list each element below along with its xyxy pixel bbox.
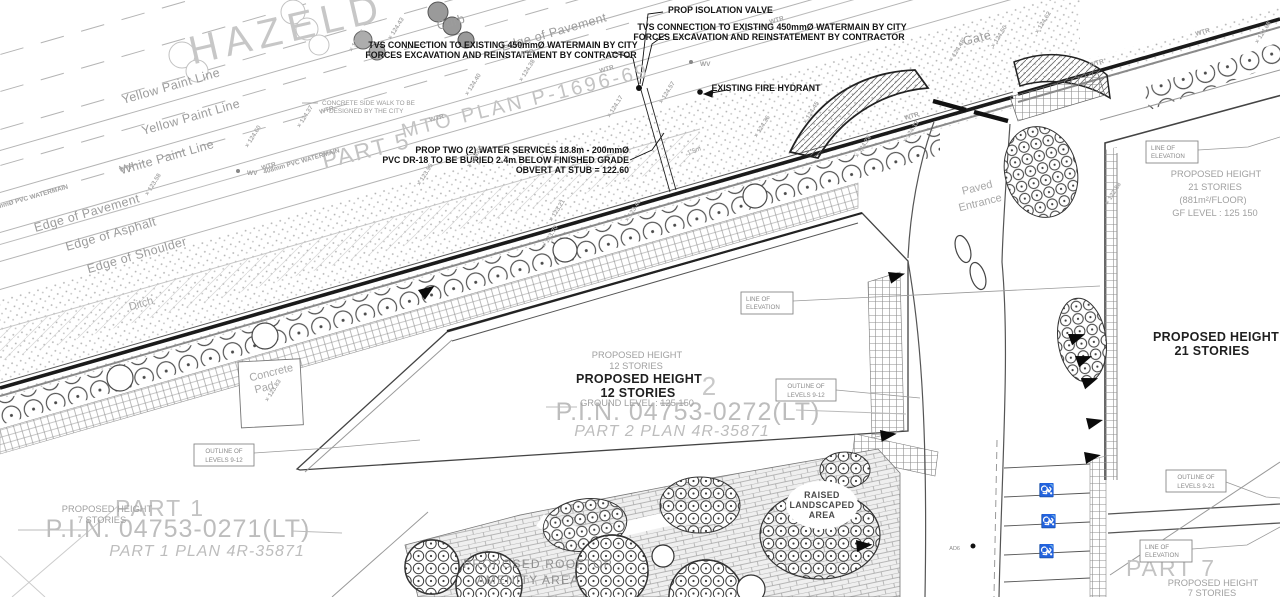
site-plan-drawing: ♿ ♿ ♿ AD6 [0,0,1280,597]
accessible-parking-icon: ♿ [1039,482,1054,498]
yellow-paint-line-label: Yellow Paint Line [140,96,241,137]
fire-hydrant-icon [697,89,703,95]
oval-planter [967,261,989,292]
oval-planter [952,234,974,265]
b12-grey-stories: 12 STORIES [609,361,663,371]
elevation-line [1108,523,1280,533]
planters [952,118,1112,385]
b21-grey-stories: 21 STORIES [1188,182,1242,192]
b21-gf-level: GF LEVEL : 125 150 [1172,208,1257,218]
sidewalk-note-line2: DESIGNED BY THE CITY [329,108,404,115]
b12-grey-height: PROPOSED HEIGHT [592,350,683,360]
b12-bold-height: PROPOSED HEIGHT [576,372,702,386]
rooftop-amenity [332,449,900,597]
accessible-parking-icon: ♿ [1041,513,1056,529]
b7-left-height: PROPOSED HEIGHT [62,504,153,514]
outline-levels-912-box-center: OUTLINE OF LEVELS 9-12 [776,379,836,401]
b21-grey-height: PROPOSED HEIGHT [1171,169,1262,179]
tree-icon [553,238,577,262]
shrub-mass [1052,295,1111,385]
yellow-paint-line-label: Yellow Paint Line [120,65,221,106]
drive-centerline-dashed [994,440,997,597]
water-services-note-line1: PROP TWO (2) WATER SERVICES 18.8m - 200m… [415,145,629,155]
water-services-note-line2: PVC DR-18 TO BE BURIED 2.4m BELOW FINISH… [382,155,629,165]
box-text: LEVELS 9-21 [1177,483,1215,490]
site-plan-svg: ♿ ♿ ♿ AD6 [0,0,1280,597]
survey-point-dot [971,544,976,549]
water-valve-icon [236,169,240,173]
wv-label: WV [247,170,258,177]
box-text: ELEVATION [746,304,780,311]
building-21-storey [1100,70,1280,480]
box-text: LINE OF [746,296,770,303]
rooftop-label-line2: AMENITY AREA [477,573,580,587]
box-text: LEVELS 9-12 [787,392,825,399]
drive-edge-west [908,261,926,597]
leader-line-of-elevation-3 [1192,527,1280,549]
arrow-icon [1086,414,1104,430]
box-text: OUTLINE OF [205,448,242,455]
survey-elevation-mark: × 124.60 [244,124,263,149]
line-of-elevation-box-3: LINE OF ELEVATION [1140,540,1192,562]
survey-elevation-mark: × 124.57 [658,80,677,105]
part1-plan-label: PART 1 PLAN 4R-35871 [109,543,305,560]
wv-label: WV [700,61,711,68]
tree-icon [743,184,767,208]
b7-right-height: PROPOSED HEIGHT [1168,578,1259,588]
parking-area: ♿ ♿ ♿ AD6 [949,456,1106,597]
sidewalk-note-line1: CONCRETE SIDE WALK TO BE [322,100,415,107]
outline-levels-912-box-left: OUTLINE OF LEVELS 9-12 [194,444,254,466]
parcel-2-number: 2 [702,371,716,401]
box-text: LINE OF [1145,544,1169,551]
shrub-mass [660,477,740,533]
rooftop-label-line1: PROPOSED ROOFTOP [463,557,613,571]
tree-icon [107,365,133,391]
drive-edge-east [999,262,1005,597]
tvs-note-1-line2: FORCES EXCAVATION AND REINSTATEMENT BY C… [365,50,637,60]
box-text: LINE OF [1151,145,1175,152]
accessible-parking-icon: ♿ [1039,543,1054,559]
survey-point-label: AD6 [949,546,960,552]
survey-elevation-mark: × 124.40 [464,72,483,97]
b21-bold-stories: 21 STORIES [1174,344,1249,358]
line-of-elevation-box-1: LINE OF ELEVATION [741,292,793,314]
survey-elevation-mark: × 124.17 [606,94,625,119]
line-of-elevation-box-2: LINE OF ELEVATION [1146,141,1198,163]
tvs-note-2-line2: FORCES EXCAVATION AND REINSTATEMENT BY C… [633,32,905,42]
b12-ground-level: GROUND LEVEL : 125 150 [580,398,694,408]
survey-elevation-mark: × 124.37 [296,104,315,129]
water-valve-icon [689,60,693,64]
water-services-note-line3: OBVERT AT STUB = 122.60 [516,165,629,175]
watermain-450-label: 450mmØ PVC WATERMAIN [0,184,69,214]
tree-icon [252,323,278,349]
white-paint-line-label: White Paint Line [118,137,216,177]
b7-right-stories: 7 STORIES [1188,588,1236,597]
b21-bold-height: PROPOSED HEIGHT [1153,330,1279,344]
fire-hydrant-note: EXISTING FIRE HYDRANT [712,83,822,93]
box-text: LEVELS 9-12 [205,457,243,464]
survey-elevation-mark: × 123.58 [144,172,163,197]
elevation-line [1108,504,1280,514]
parking-edge-grid [1090,456,1106,597]
prop-isolation-valve-note: PROP ISOLATION VALVE [668,5,773,15]
lot-line [0,556,45,597]
shrub-mass [994,118,1087,226]
part2-plan-label: PART 2 PLAN 4R-35871 [574,423,770,440]
raised-label-line1: RAISED [804,490,840,500]
box-text: ELEVATION [1151,153,1185,160]
box-text: OUTLINE OF [787,383,824,390]
box-text: OUTLINE OF [1177,474,1214,481]
raised-label-line2: LANDSCAPED [789,500,854,510]
box-text: ELEVATION [1145,552,1179,559]
raised-label-line3: AREA [809,510,836,520]
b7-left-stories: 7 STORIES [78,515,126,525]
b21-floor-area: (881m²/FLOOR) [1179,195,1246,205]
tvs-note-1-line1: TVS CONNECTION TO EXISTING 450mmØ WATERM… [368,40,637,50]
leader-outline-921 [1226,482,1280,498]
outline-levels-921-box: OUTLINE OF LEVELS 9-21 [1166,470,1226,492]
